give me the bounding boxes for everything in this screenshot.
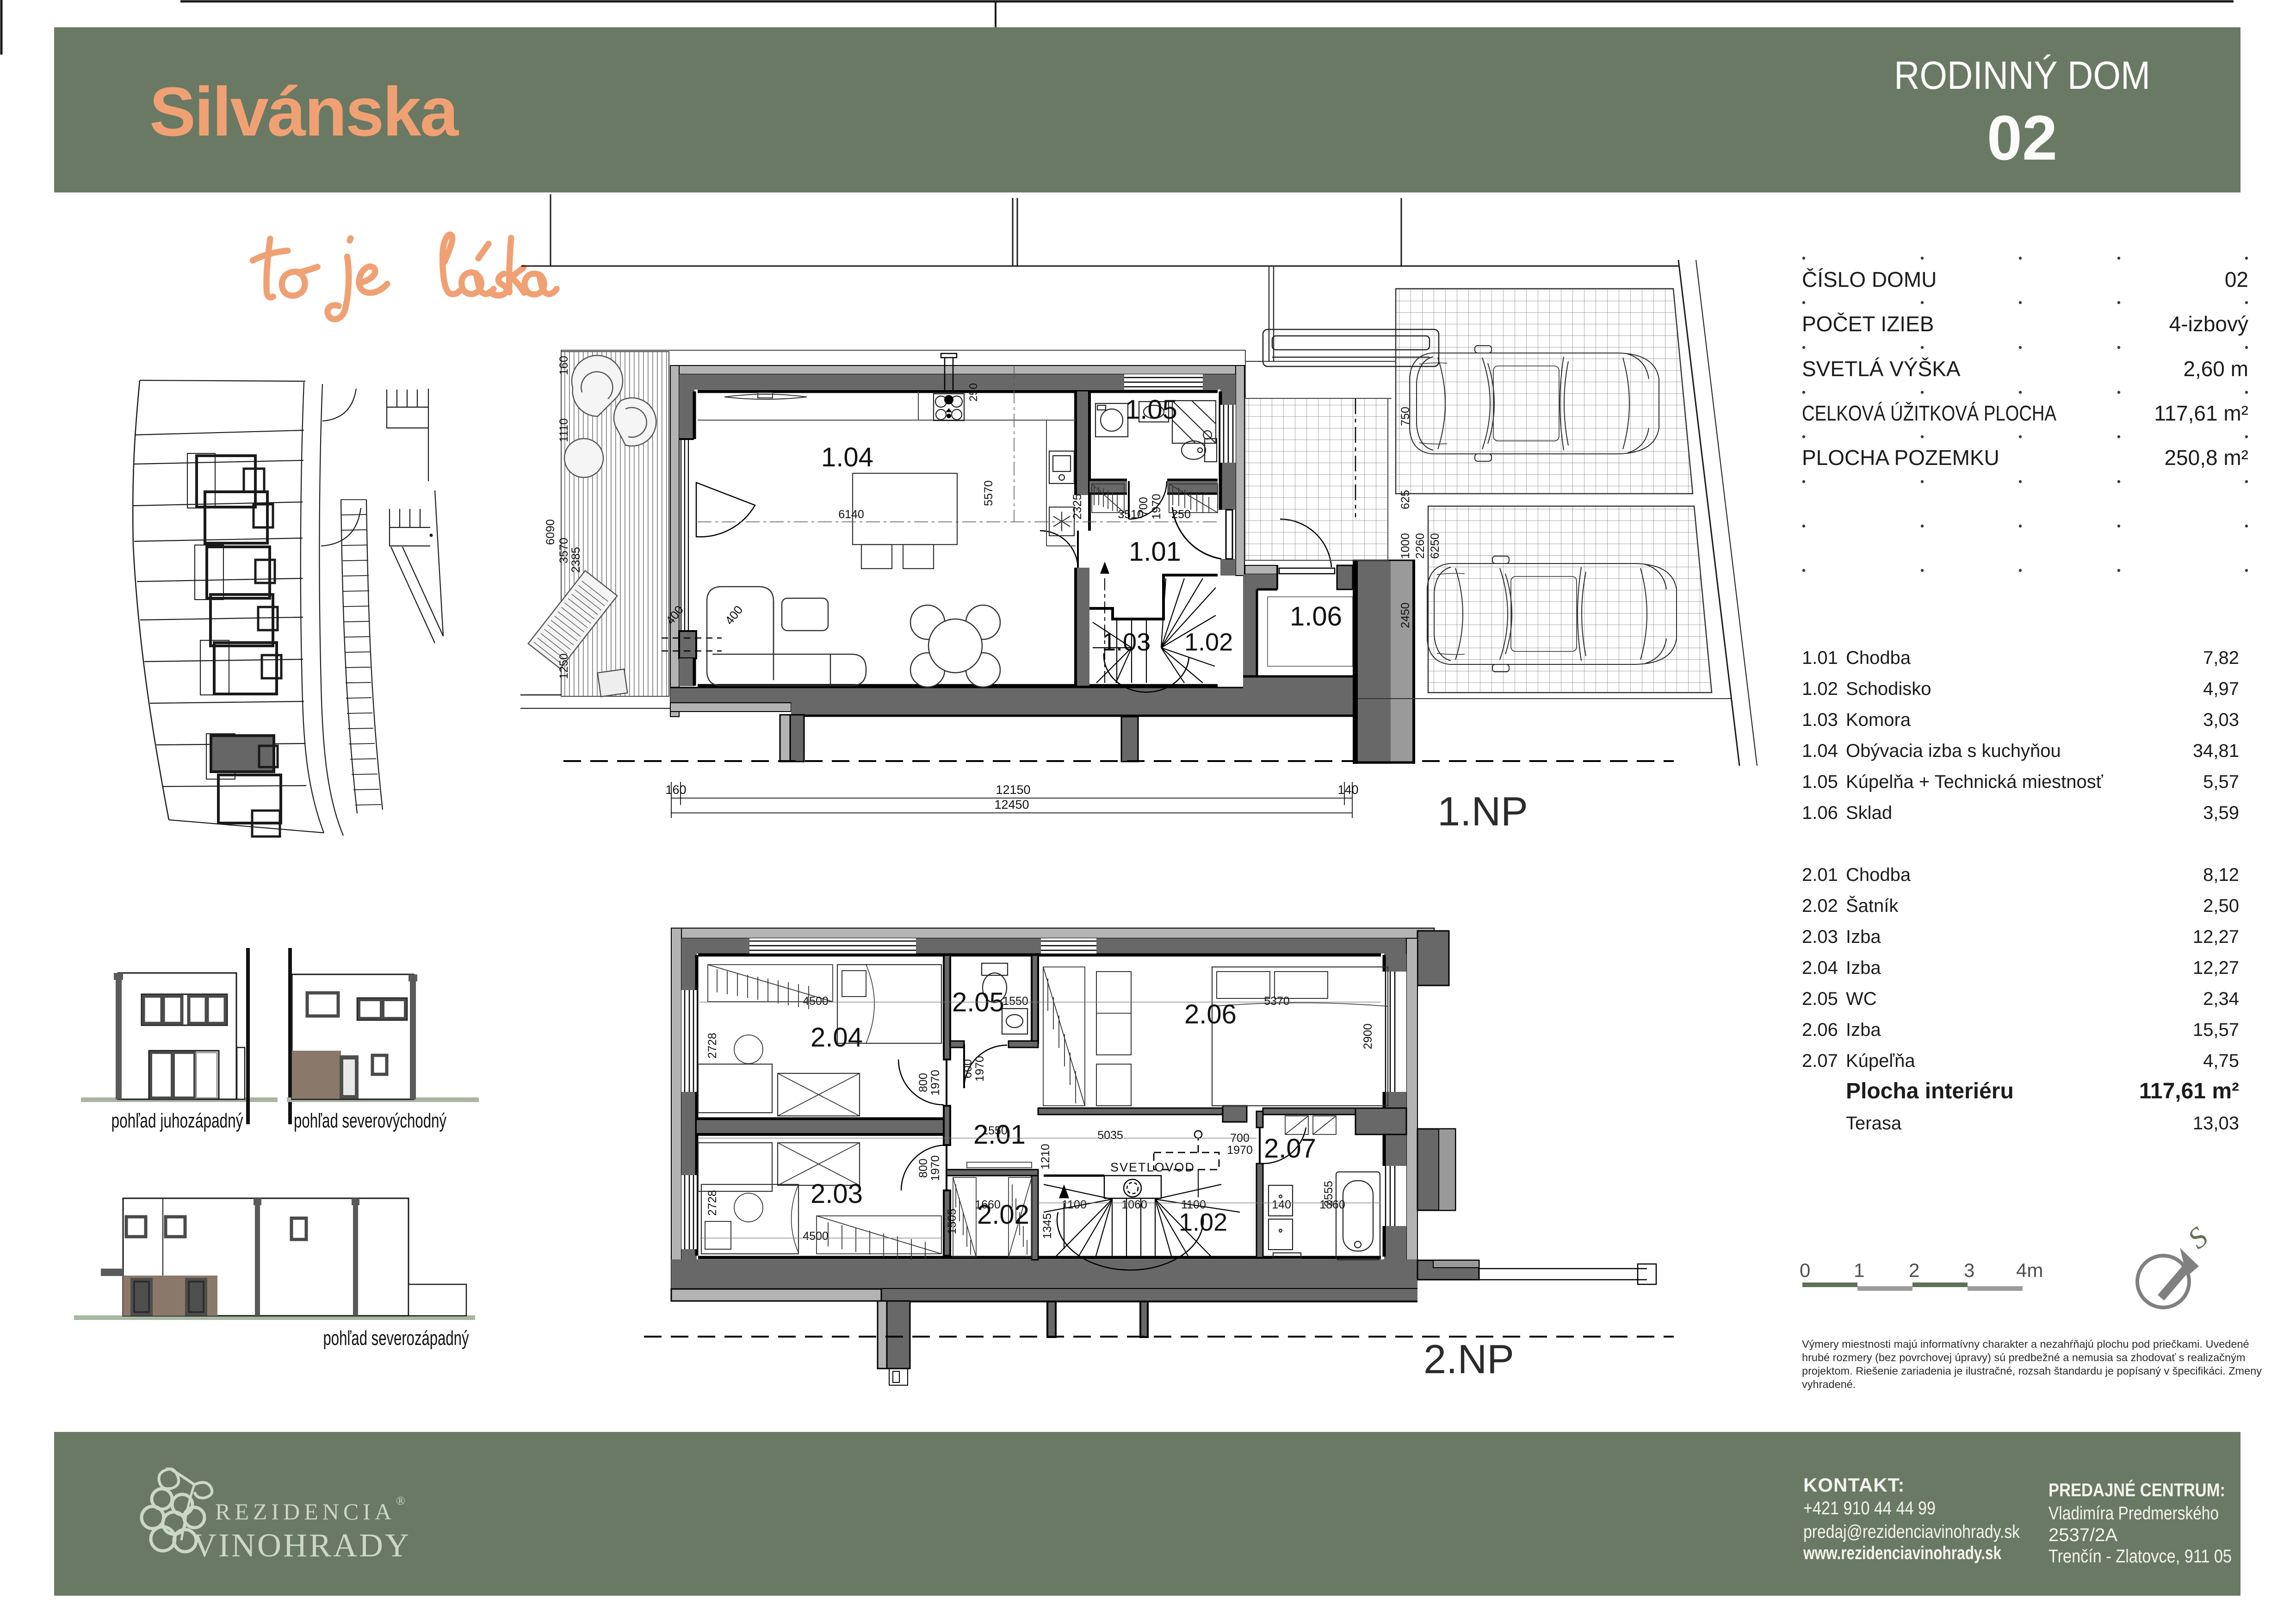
svg-text:1060: 1060: [1121, 1198, 1147, 1211]
svg-text:Vladimíra Predmerského: Vladimíra Predmerského: [2048, 1503, 2219, 1524]
svg-text:Plocha interiéru: Plocha interiéru: [1846, 1079, 2014, 1103]
svg-text:625: 625: [1399, 490, 1412, 509]
svg-text:1100: 1100: [1181, 1198, 1206, 1211]
svg-text:2.04: 2.04: [1802, 958, 1838, 978]
svg-text:ČÍSLO DOMU: ČÍSLO DOMU: [1802, 267, 1937, 291]
svg-text:1.05: 1.05: [1802, 772, 1838, 792]
svg-text:1.05: 1.05: [1125, 395, 1177, 425]
svg-text:5370: 5370: [1264, 995, 1290, 1008]
svg-text:1.06: 1.06: [1802, 803, 1838, 823]
svg-text:3,03: 3,03: [2203, 710, 2239, 730]
svg-text:Trenčín - Zlatovce, 911 05: Trenčín - Zlatovce, 911 05: [2048, 1546, 2232, 1567]
svg-text:250: 250: [967, 383, 980, 402]
svg-text:1.01: 1.01: [1802, 648, 1838, 668]
svg-text:250,8 m²: 250,8 m²: [2164, 446, 2248, 470]
svg-text:12,27: 12,27: [2193, 927, 2239, 947]
svg-text:Chodba: Chodba: [1846, 865, 1911, 885]
svg-text:2.03: 2.03: [1802, 927, 1838, 947]
svg-text:1345: 1345: [1041, 1213, 1054, 1239]
svg-text:4500: 4500: [803, 1230, 829, 1243]
svg-text:2.NP: 2.NP: [1423, 1336, 1514, 1382]
svg-text:3570: 3570: [557, 538, 570, 564]
svg-text:160: 160: [665, 783, 686, 797]
svg-text:2: 2: [1909, 1259, 1919, 1281]
svg-text:1970: 1970: [1227, 1144, 1253, 1157]
svg-text:+421 910 44 44 99: +421 910 44 44 99: [1803, 1498, 1936, 1518]
svg-text:1.06: 1.06: [1290, 601, 1342, 632]
svg-text:3510: 3510: [1118, 508, 1144, 521]
svg-text:Izba: Izba: [1846, 1020, 1881, 1040]
svg-text:Terasa: Terasa: [1846, 1113, 1902, 1134]
svg-text:1.03: 1.03: [1102, 628, 1151, 656]
svg-text:1550: 1550: [982, 1124, 1008, 1137]
svg-text:3: 3: [1964, 1259, 1974, 1281]
svg-text:4-izbový: 4-izbový: [2169, 312, 2248, 336]
svg-text:140: 140: [1272, 1198, 1291, 1211]
svg-text:2.04: 2.04: [811, 1022, 863, 1053]
svg-text:pohľad severovýchodný: pohľad severovýchodný: [294, 1109, 446, 1132]
svg-text:4,75: 4,75: [2203, 1051, 2239, 1071]
svg-text:PREDAJNÉ CENTRUM:: PREDAJNÉ CENTRUM:: [2048, 1480, 2225, 1500]
svg-text:2385: 2385: [569, 547, 582, 573]
svg-text:www.rezidenciavinohrady.sk: www.rezidenciavinohrady.sk: [1803, 1543, 2001, 1563]
svg-text:2,34: 2,34: [2203, 989, 2239, 1009]
svg-text:4m: 4m: [2016, 1259, 2043, 1281]
svg-text:15,57: 15,57: [2193, 1020, 2239, 1040]
svg-text:2.07: 2.07: [1802, 1051, 1838, 1071]
svg-text:2.02: 2.02: [1802, 896, 1838, 916]
svg-text:1210: 1210: [1039, 1144, 1052, 1170]
svg-text:5035: 5035: [1097, 1129, 1123, 1142]
svg-text:800: 800: [917, 1073, 930, 1092]
svg-text:VINOHRADY: VINOHRADY: [192, 1527, 411, 1564]
svg-text:7,82: 7,82: [2203, 648, 2239, 668]
svg-text:1970: 1970: [929, 1155, 942, 1181]
svg-text:®: ®: [396, 1494, 405, 1507]
svg-text:Silvánska: Silvánska: [149, 73, 459, 150]
svg-text:2.03: 2.03: [811, 1179, 863, 1209]
svg-text:1110: 1110: [557, 418, 570, 442]
svg-text:KONTAKT:: KONTAKT:: [1803, 1474, 1905, 1496]
svg-text:117,61 m²: 117,61 m²: [2154, 401, 2248, 425]
svg-text:Schodisko: Schodisko: [1846, 679, 1931, 699]
svg-text:Kúpeľňa: Kúpeľňa: [1846, 1051, 1915, 1071]
svg-text:2,60 m: 2,60 m: [2183, 357, 2248, 381]
svg-text:1.04: 1.04: [821, 442, 873, 472]
svg-text:1.02: 1.02: [1184, 628, 1233, 656]
svg-text:2.06: 2.06: [1184, 999, 1237, 1029]
svg-text:1100: 1100: [1062, 1198, 1087, 1211]
svg-text:projektom. Riešenie zariadenia: projektom. Riešenie zariadenia je ilustr…: [1802, 1365, 2262, 1377]
svg-text:Sklad: Sklad: [1846, 803, 1892, 823]
svg-text:2.01: 2.01: [1802, 865, 1838, 885]
svg-text:Izba: Izba: [1846, 927, 1881, 947]
svg-text:pohľad juhozápadný: pohľad juhozápadný: [111, 1109, 243, 1132]
svg-text:pohľad severozápadný: pohľad severozápadný: [323, 1327, 469, 1350]
svg-text:2325: 2325: [1071, 494, 1084, 520]
svg-text:2728: 2728: [706, 1033, 719, 1059]
svg-text:4500: 4500: [803, 995, 829, 1008]
svg-text:34,81: 34,81: [2193, 741, 2239, 761]
svg-text:3,59: 3,59: [2203, 803, 2239, 823]
svg-text:hrubé rozmery (bez povrchovej: hrubé rozmery (bez povrchovej úpravy) sú…: [1802, 1351, 2245, 1363]
svg-text:0: 0: [1800, 1259, 1810, 1281]
svg-text:02: 02: [2225, 267, 2248, 291]
svg-text:vyhradené.: vyhradené.: [1802, 1378, 1856, 1390]
svg-text:POČET IZIEB: POČET IZIEB: [1802, 312, 1934, 336]
svg-text:2450: 2450: [1399, 602, 1412, 628]
svg-text:12450: 12450: [994, 798, 1029, 811]
svg-text:1.02: 1.02: [1179, 1208, 1227, 1236]
svg-text:CELKOVÁ ÚŽITKOVÁ PLOCHA: CELKOVÁ ÚŽITKOVÁ PLOCHA: [1802, 401, 2056, 425]
svg-text:4,97: 4,97: [2203, 679, 2239, 699]
svg-text:1.NP: 1.NP: [1437, 788, 1528, 834]
svg-text:Izba: Izba: [1846, 958, 1881, 978]
svg-text:2900: 2900: [1362, 1023, 1374, 1049]
svg-text:RODINNÝ DOM: RODINNÝ DOM: [1894, 54, 2150, 98]
svg-text:5570: 5570: [982, 480, 995, 506]
svg-text:Chodba: Chodba: [1846, 648, 1911, 668]
svg-text:predaj@rezidenciavinohrady.sk: predaj@rezidenciavinohrady.sk: [1803, 1522, 2020, 1542]
svg-text:1550: 1550: [1003, 995, 1028, 1008]
svg-text:Šatník: Šatník: [1846, 895, 1899, 916]
svg-text:250: 250: [1171, 508, 1191, 521]
svg-text:140: 140: [1337, 783, 1358, 797]
svg-text:800: 800: [917, 1158, 930, 1178]
svg-text:1.02: 1.02: [1802, 679, 1838, 699]
svg-text:6090: 6090: [544, 519, 557, 545]
svg-text:2260: 2260: [1414, 533, 1427, 559]
svg-text:2.05: 2.05: [1802, 989, 1838, 1009]
svg-text:1.01: 1.01: [1129, 537, 1181, 567]
svg-text:1: 1: [1854, 1259, 1864, 1281]
svg-text:Obývacia izba s kuchyňou: Obývacia izba s kuchyňou: [1846, 741, 2061, 761]
svg-text:2.07: 2.07: [1264, 1134, 1316, 1164]
svg-text:2.06: 2.06: [1802, 1020, 1838, 1040]
svg-text:02: 02: [1987, 103, 2057, 173]
svg-text:SVETLÁ VÝŠKA: SVETLÁ VÝŠKA: [1802, 357, 1961, 381]
svg-text:1250: 1250: [557, 653, 570, 679]
svg-text:5,57: 5,57: [2203, 772, 2239, 792]
svg-text:PLOCHA POZEMKU: PLOCHA POZEMKU: [1802, 446, 1999, 470]
svg-text:160: 160: [557, 356, 570, 375]
svg-text:6140: 6140: [838, 508, 864, 521]
svg-text:13,03: 13,03: [2193, 1113, 2239, 1134]
svg-text:2537/2A: 2537/2A: [2048, 1525, 2117, 1545]
svg-text:6250: 6250: [1429, 533, 1442, 559]
svg-text:12150: 12150: [996, 783, 1030, 797]
svg-text:REZIDENCIA: REZIDENCIA: [215, 1499, 396, 1524]
svg-text:1970: 1970: [1150, 494, 1163, 520]
svg-text:1970: 1970: [929, 1070, 942, 1096]
svg-text:117,61 m²: 117,61 m²: [2139, 1079, 2239, 1103]
svg-text:8,12: 8,12: [2203, 865, 2239, 885]
svg-text:1660: 1660: [975, 1198, 1001, 1211]
svg-text:SVETLOVOD: SVETLOVOD: [1110, 1160, 1195, 1174]
svg-text:1.03: 1.03: [1802, 710, 1838, 730]
svg-text:1505: 1505: [946, 1208, 959, 1234]
svg-text:1000: 1000: [1399, 533, 1412, 559]
svg-text:WC: WC: [1846, 989, 1877, 1009]
svg-text:750: 750: [1399, 407, 1412, 426]
svg-text:1.04: 1.04: [1802, 741, 1838, 761]
svg-text:Výmery miestnosti majú informa: Výmery miestnosti majú informatívny char…: [1802, 1338, 2249, 1350]
svg-text:1970: 1970: [973, 1056, 986, 1082]
svg-text:Komora: Komora: [1846, 710, 1911, 730]
svg-text:12,27: 12,27: [2193, 958, 2239, 978]
svg-text:2,50: 2,50: [2203, 896, 2239, 916]
svg-text:2728: 2728: [706, 1190, 719, 1216]
svg-text:Kúpelňa + Technická miestnosť: Kúpelňa + Technická miestnosť: [1846, 772, 2104, 792]
svg-text:600: 600: [961, 1059, 974, 1078]
